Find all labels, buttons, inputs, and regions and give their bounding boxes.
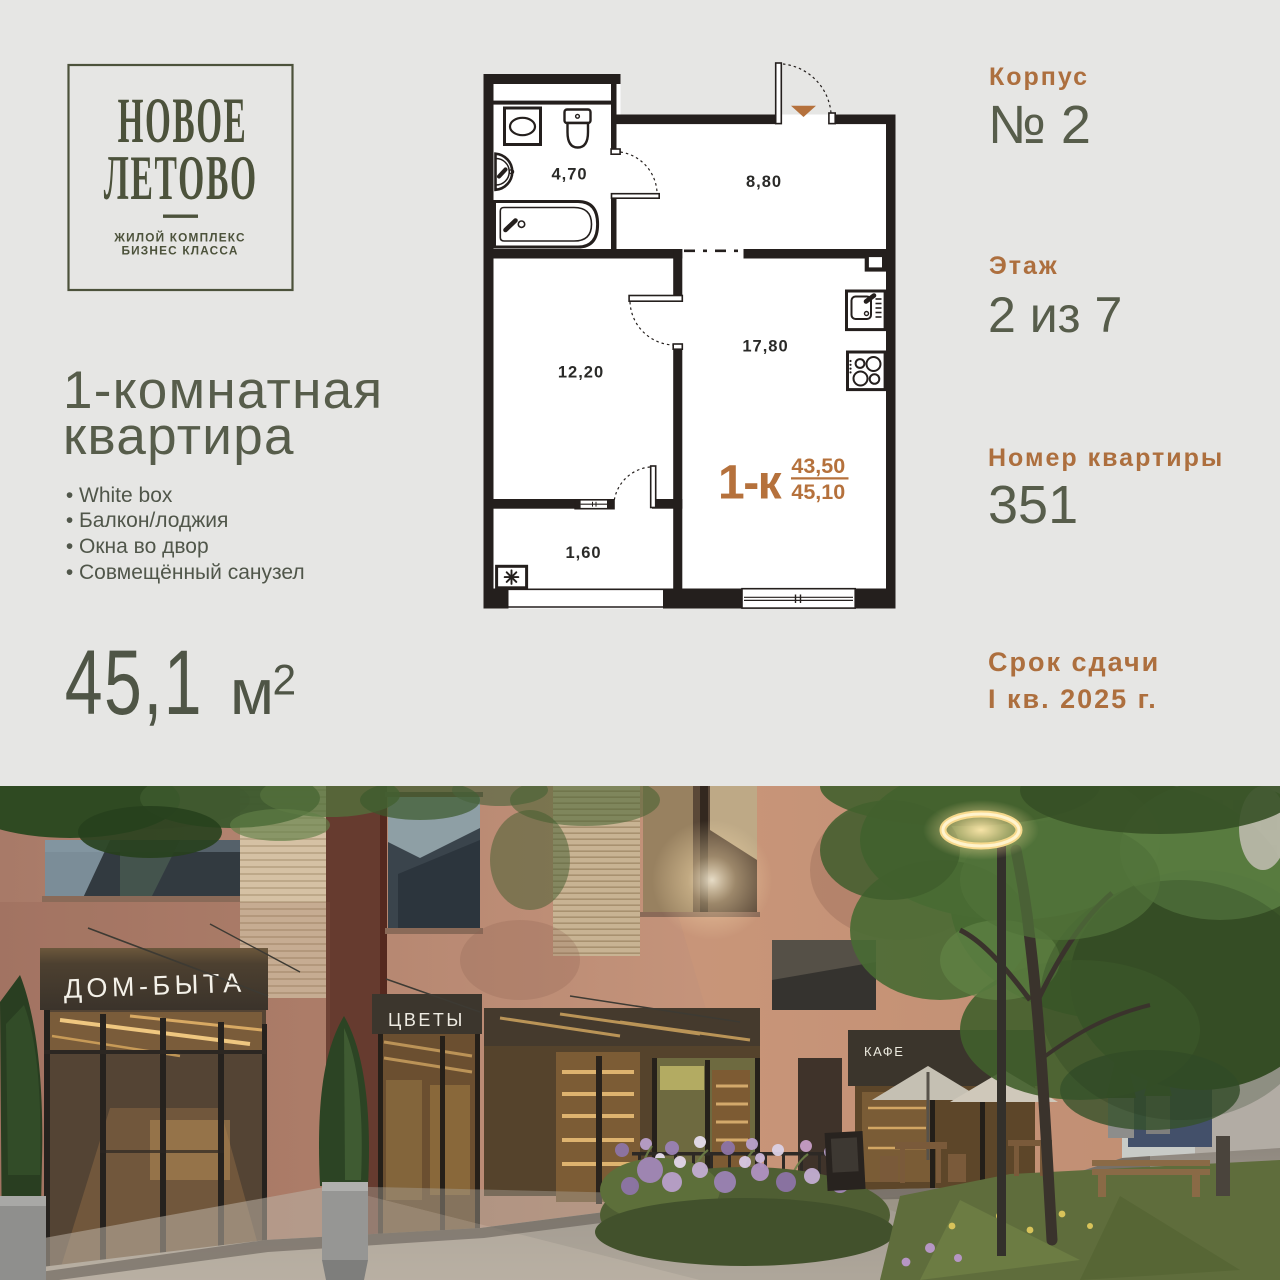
svg-text:43,50: 43,50: [791, 454, 845, 478]
svg-text:ДОМ-БЫТА: ДОМ-БЫТА: [63, 968, 246, 1004]
svg-text:КАФЕ: КАФЕ: [864, 1044, 904, 1059]
svg-text:БИЗНЕС КЛАССА: БИЗНЕС КЛАССА: [121, 244, 238, 258]
svg-text:1,60: 1,60: [565, 544, 601, 562]
svg-text:45,1: 45,1: [65, 635, 203, 734]
svg-text:м: м: [230, 656, 274, 728]
svg-text:8,80: 8,80: [746, 173, 782, 191]
svg-text:4,70: 4,70: [551, 166, 587, 184]
svg-text:12,20: 12,20: [558, 364, 604, 382]
svg-text:1-к: 1-к: [718, 457, 783, 510]
svg-text:17,80: 17,80: [742, 337, 788, 355]
svg-text:2: 2: [273, 657, 297, 704]
svg-text:ЛЕТОВО: ЛЕТОВО: [104, 143, 258, 213]
svg-text:ЖИЛОЙ КОМПЛЕКС: ЖИЛОЙ КОМПЛЕКС: [113, 231, 246, 245]
svg-text:45,10: 45,10: [791, 480, 845, 504]
svg-text:ЦВЕТЫ: ЦВЕТЫ: [388, 1010, 465, 1030]
